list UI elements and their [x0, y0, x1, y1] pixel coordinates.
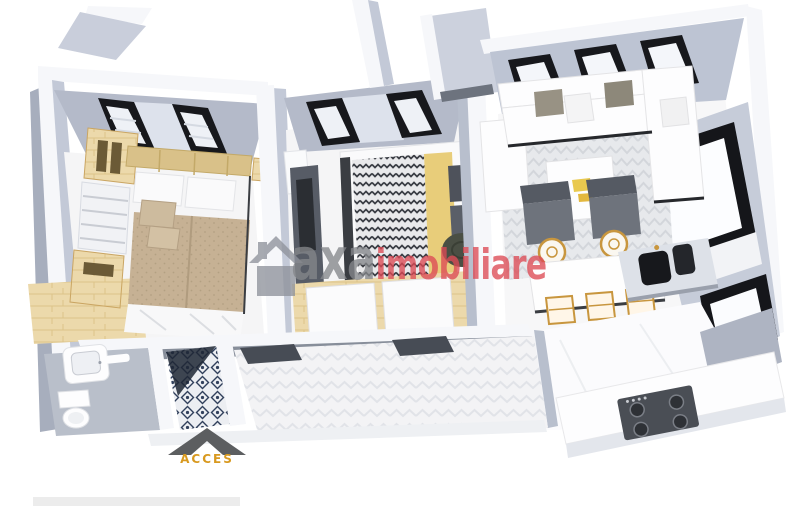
- sofa-pillow: [534, 89, 564, 117]
- armchair-1: [520, 181, 575, 245]
- floor-plan: [0, 0, 800, 506]
- sofa-pillow: [604, 80, 634, 108]
- armchair-2: [586, 175, 641, 239]
- bedroom-2: [284, 76, 486, 344]
- floor-plan-render: axaimobiliare ACCES: [0, 0, 800, 506]
- footer-bar: [33, 497, 240, 506]
- bathroom: [44, 341, 246, 436]
